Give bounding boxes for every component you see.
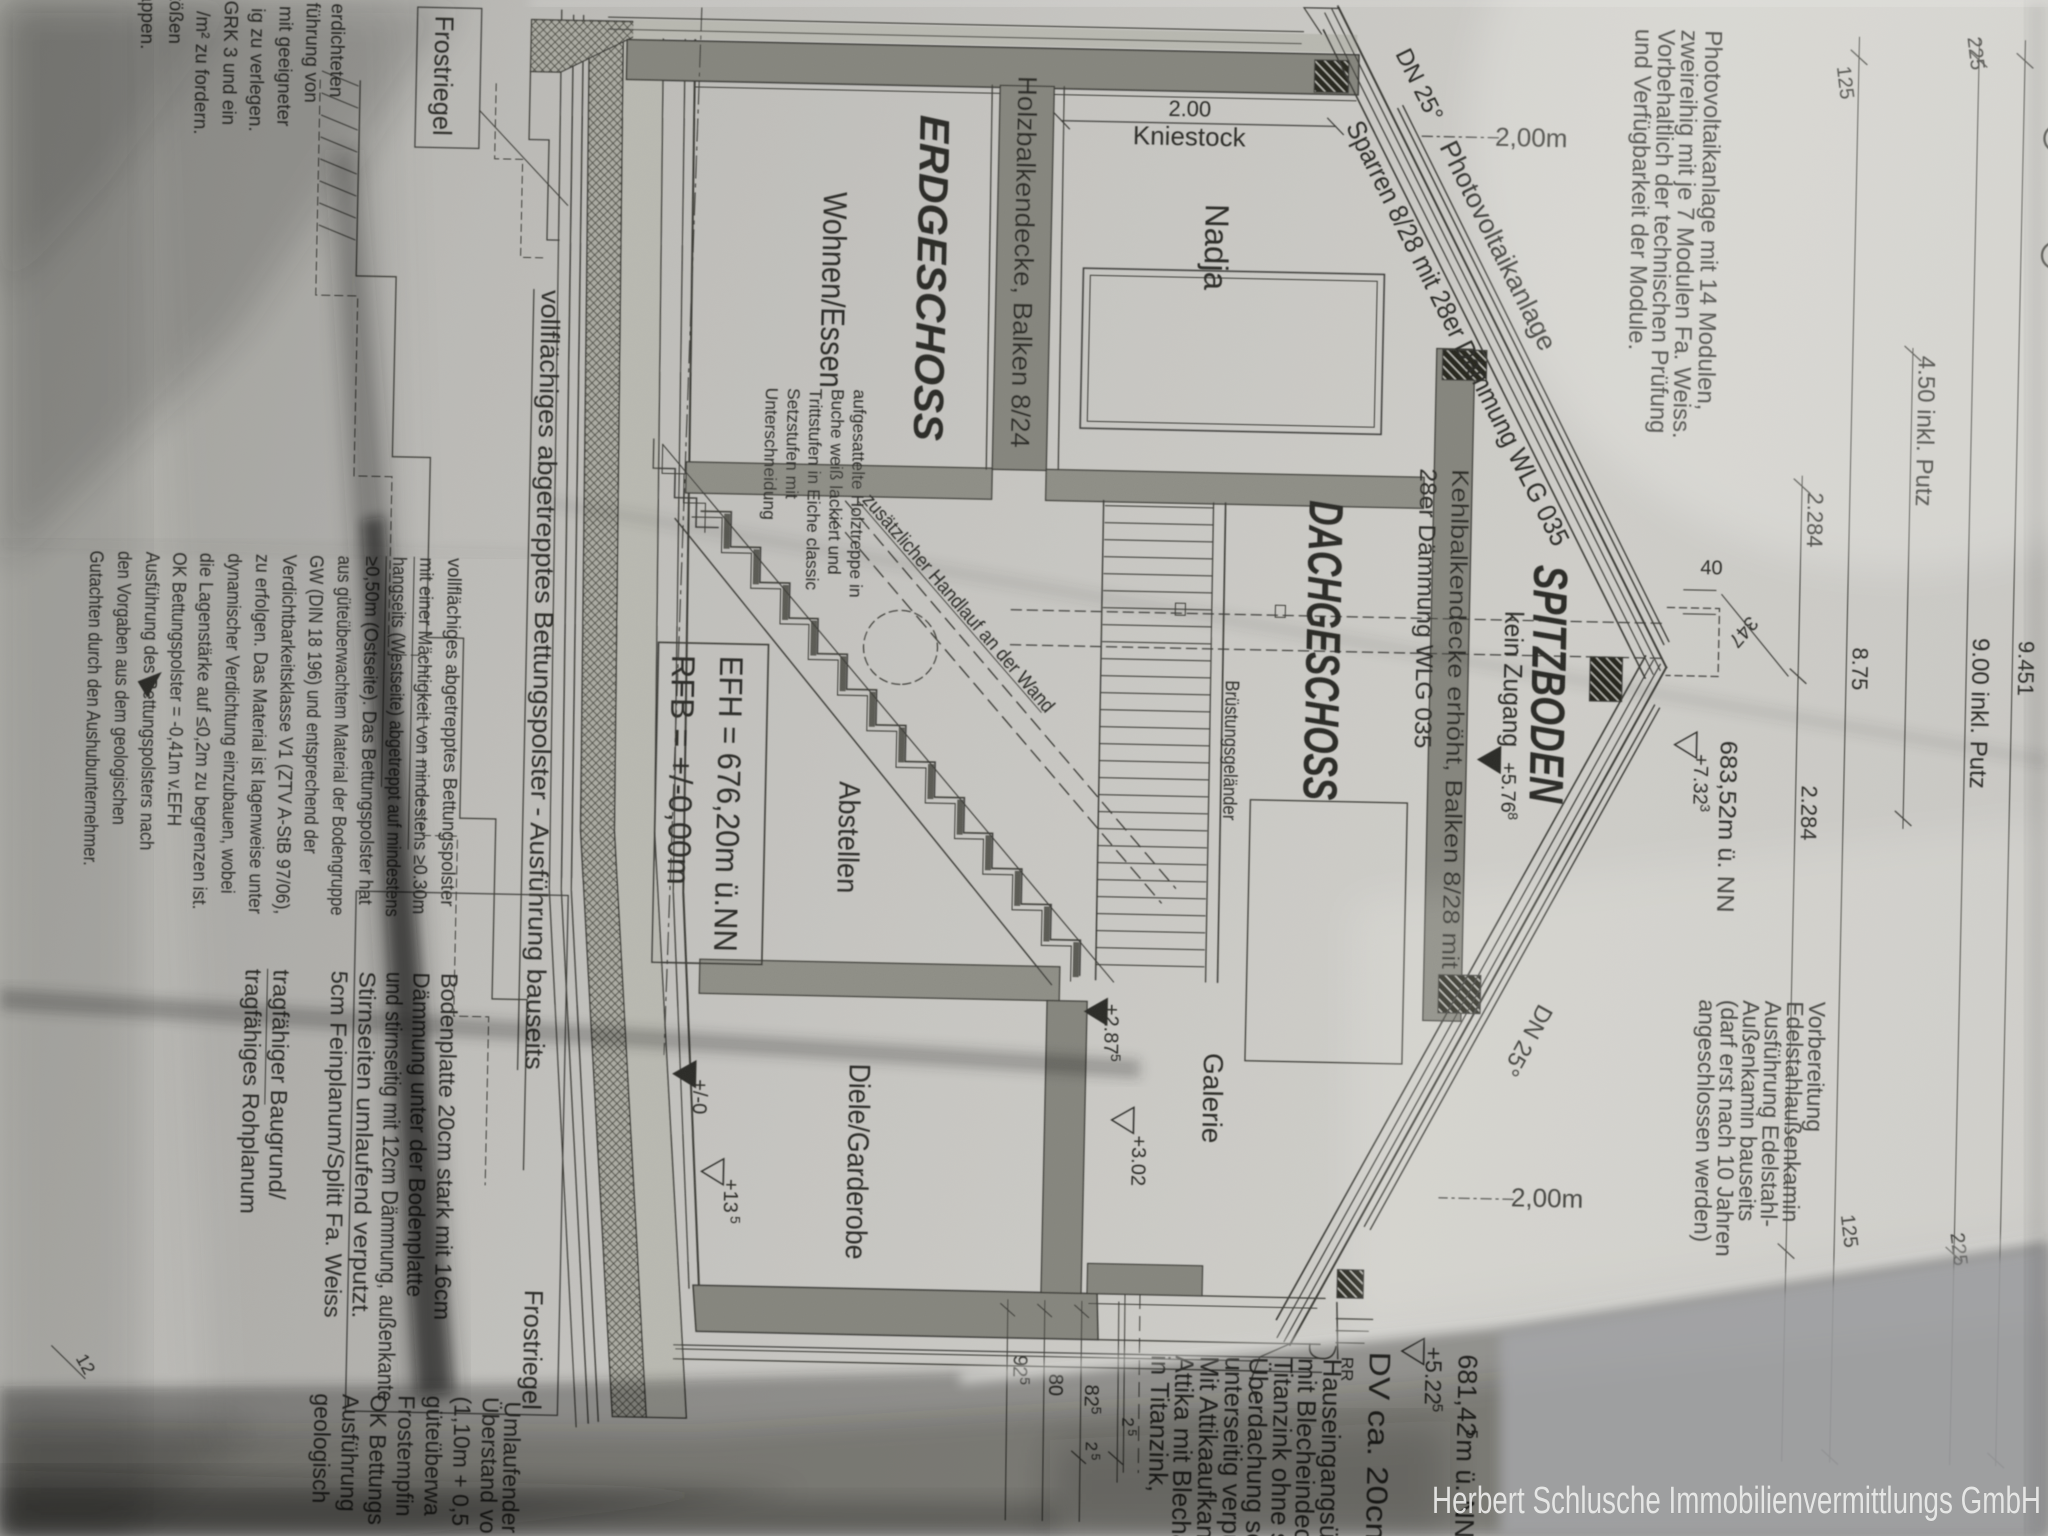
svg-text:Herbert Schlusche Immobilienve: Herbert Schlusche Immobilienvermittlungs…	[1432, 1480, 2041, 1522]
